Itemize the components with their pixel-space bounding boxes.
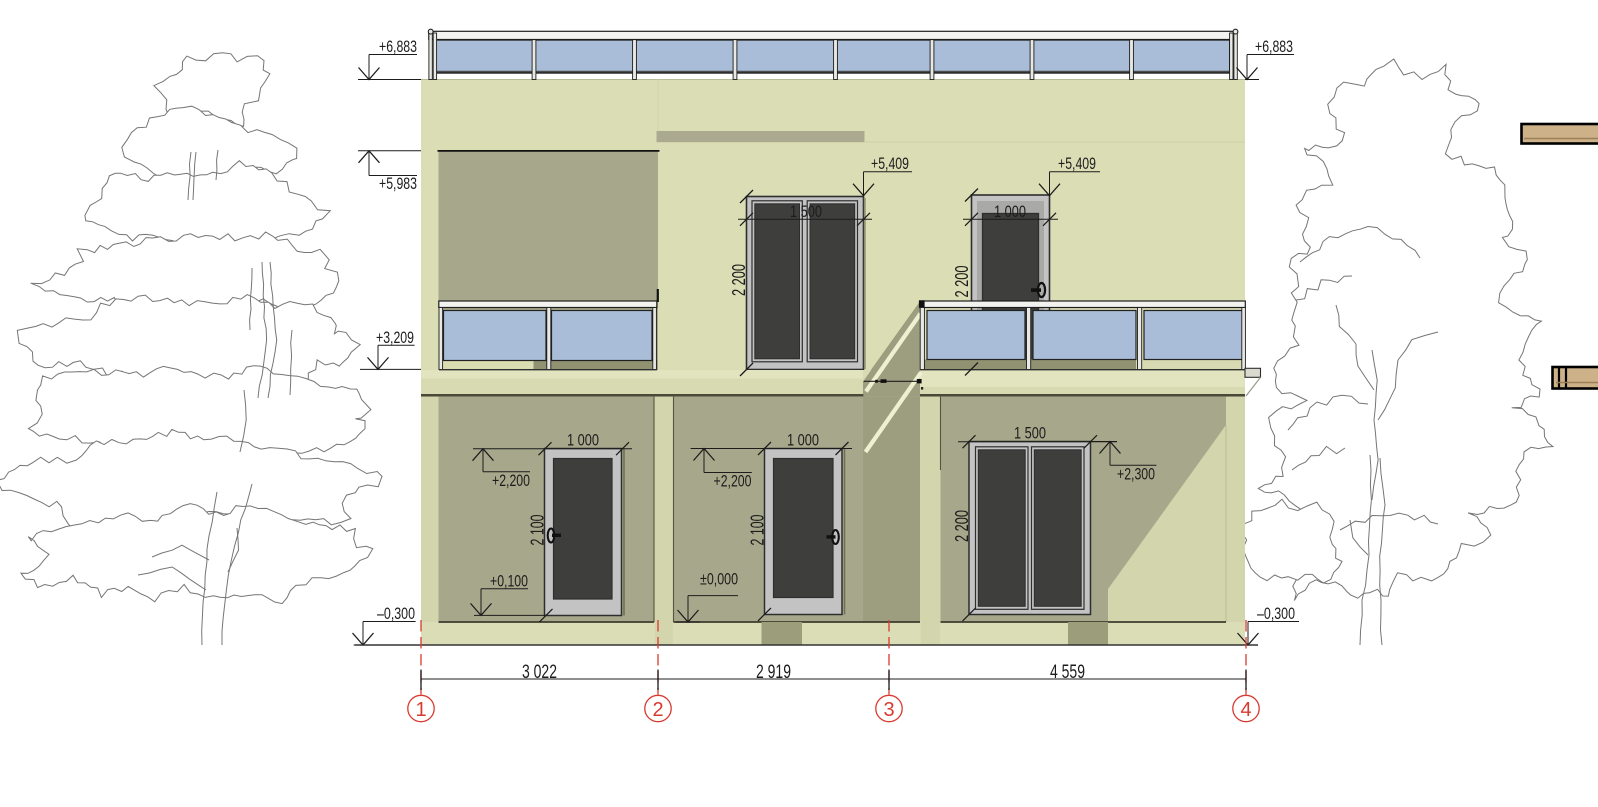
svg-text:1 500: 1 500 [790, 202, 822, 221]
svg-text:2: 2 [652, 699, 663, 721]
svg-text:1 000: 1 000 [567, 431, 599, 450]
svg-text:1: 1 [415, 699, 426, 721]
svg-text:+0,100: +0,100 [490, 572, 528, 591]
svg-text:1 000: 1 000 [994, 202, 1026, 221]
svg-text:+3,209: +3,209 [376, 328, 414, 347]
svg-text:4 559: 4 559 [1050, 661, 1085, 683]
svg-text:±0,000: ±0,000 [700, 570, 738, 589]
svg-text:+2,300: +2,300 [1117, 465, 1155, 484]
svg-text:+6,883: +6,883 [379, 37, 417, 56]
svg-text:1 000: 1 000 [787, 430, 819, 449]
svg-text:2 919: 2 919 [756, 661, 791, 683]
svg-text:2 100: 2 100 [527, 515, 547, 546]
svg-text:+2,200: +2,200 [714, 472, 752, 491]
svg-text:3: 3 [883, 699, 894, 721]
svg-text:1 500: 1 500 [1014, 424, 1046, 443]
svg-text:+5,409: +5,409 [871, 154, 909, 173]
svg-text:2 200: 2 200 [952, 266, 972, 298]
svg-text:+2,200: +2,200 [492, 471, 530, 490]
svg-text:2 200: 2 200 [729, 264, 749, 296]
svg-text:+5,409: +5,409 [1058, 154, 1096, 173]
svg-text:2 100: 2 100 [747, 515, 767, 546]
svg-text:+6,883: +6,883 [1255, 37, 1293, 56]
svg-text:–0,300: –0,300 [1257, 604, 1295, 623]
svg-text:–0,300: –0,300 [377, 604, 415, 623]
svg-text:4: 4 [1240, 699, 1251, 721]
svg-text:2 200: 2 200 [952, 510, 972, 542]
svg-text:+5,983: +5,983 [379, 174, 417, 193]
svg-text:3 022: 3 022 [522, 661, 557, 683]
